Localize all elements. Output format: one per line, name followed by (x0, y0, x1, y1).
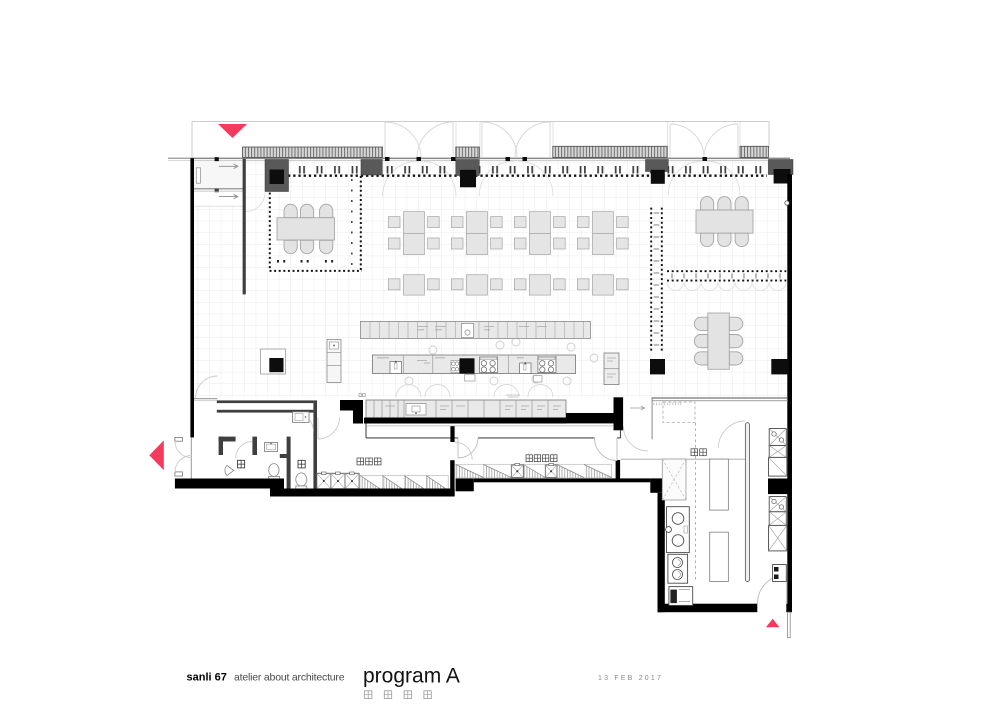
svg-text:program A: program A (363, 665, 460, 688)
svg-text:atelier about architecture: atelier about architecture (234, 672, 345, 684)
svg-text:13 FEB 2017: 13 FEB 2017 (598, 675, 663, 682)
svg-text:sanli 67: sanli 67 (187, 672, 227, 684)
